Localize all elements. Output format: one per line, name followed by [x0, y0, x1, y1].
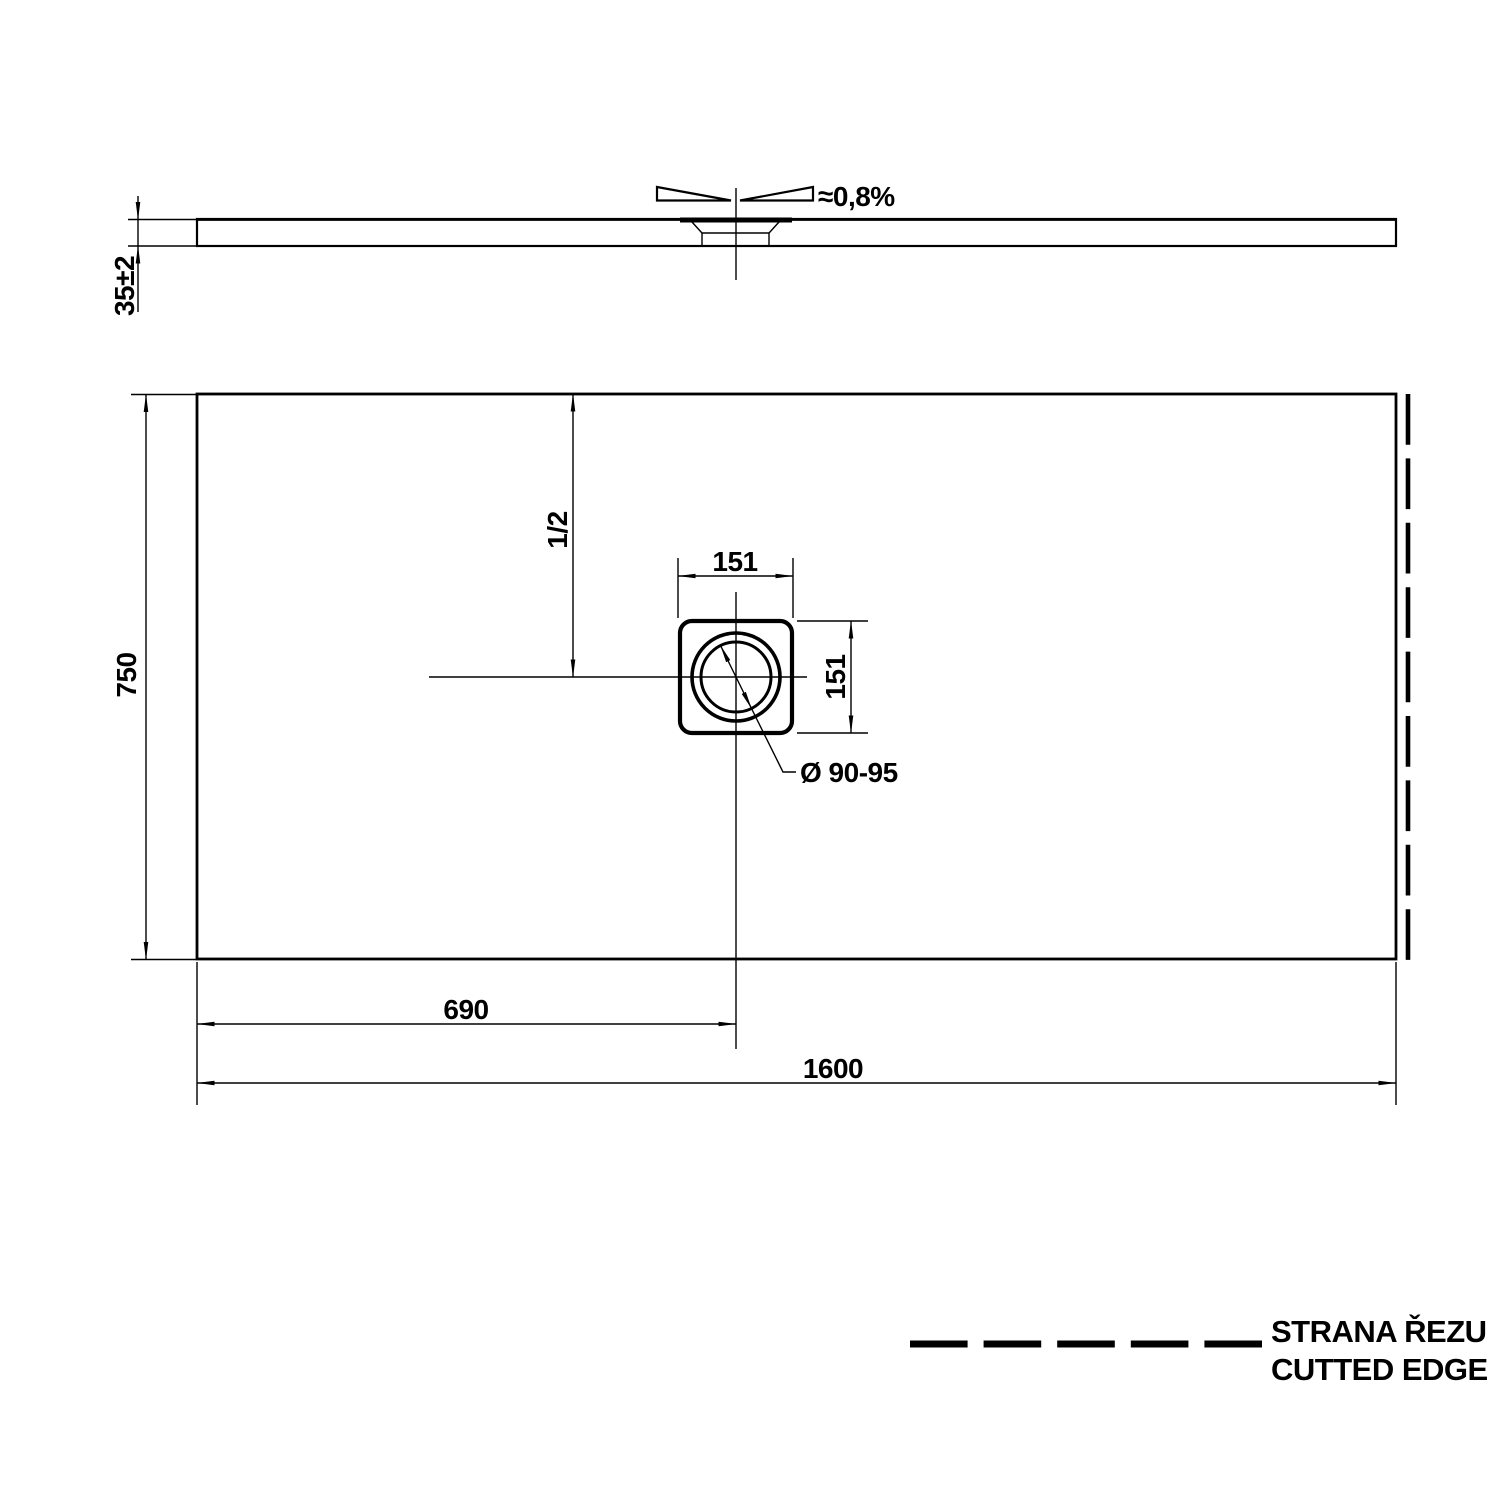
width-label: 750 — [111, 652, 142, 697]
thickness-dimension: 35±2 — [109, 196, 196, 316]
drain-height-label: 151 — [820, 654, 851, 699]
length-dimension: 1600 — [197, 1053, 1396, 1084]
tray-profile-outline — [197, 219, 1396, 246]
side-section-view: ≈0,8% 35±2 — [109, 181, 1396, 316]
width-dimension: 750 — [111, 395, 196, 960]
drain-height-dimension: 151 — [797, 621, 868, 733]
slope-wedge-right — [740, 187, 813, 201]
half-label: 1/2 — [542, 511, 573, 548]
shower-tray-drawing: ≈0,8% 35±2 Ø 90-95 — [0, 0, 1500, 1500]
drain-offset-label: 690 — [443, 994, 488, 1025]
drain-offset-dimension: 690 — [197, 994, 736, 1025]
half-height-dimension: 1/2 — [542, 394, 573, 677]
drain-diameter-dimension: Ø 90-95 — [721, 646, 898, 789]
slope-indicator: ≈0,8% — [657, 181, 895, 212]
slope-wedge-left — [657, 187, 731, 201]
legend-label-czech: STRANA ŘEZU — [1271, 1313, 1487, 1349]
diameter-leader-line — [752, 709, 797, 773]
slope-label: ≈0,8% — [818, 181, 895, 212]
legend: STRANA ŘEZU CUTTED EDGE — [910, 1313, 1488, 1387]
drain-diameter-label: Ø 90-95 — [800, 757, 898, 788]
drain-cross-section — [680, 188, 792, 280]
plan-view: Ø 90-95 151 151 1/2 750 — [111, 394, 1408, 1105]
thickness-label: 35±2 — [109, 256, 140, 316]
length-label: 1600 — [803, 1053, 863, 1084]
drain-width-label: 151 — [712, 546, 757, 577]
technical-drawing-sheet: ≈0,8% 35±2 Ø 90-95 — [0, 0, 1500, 1500]
legend-label-english: CUTTED EDGE — [1271, 1352, 1488, 1387]
